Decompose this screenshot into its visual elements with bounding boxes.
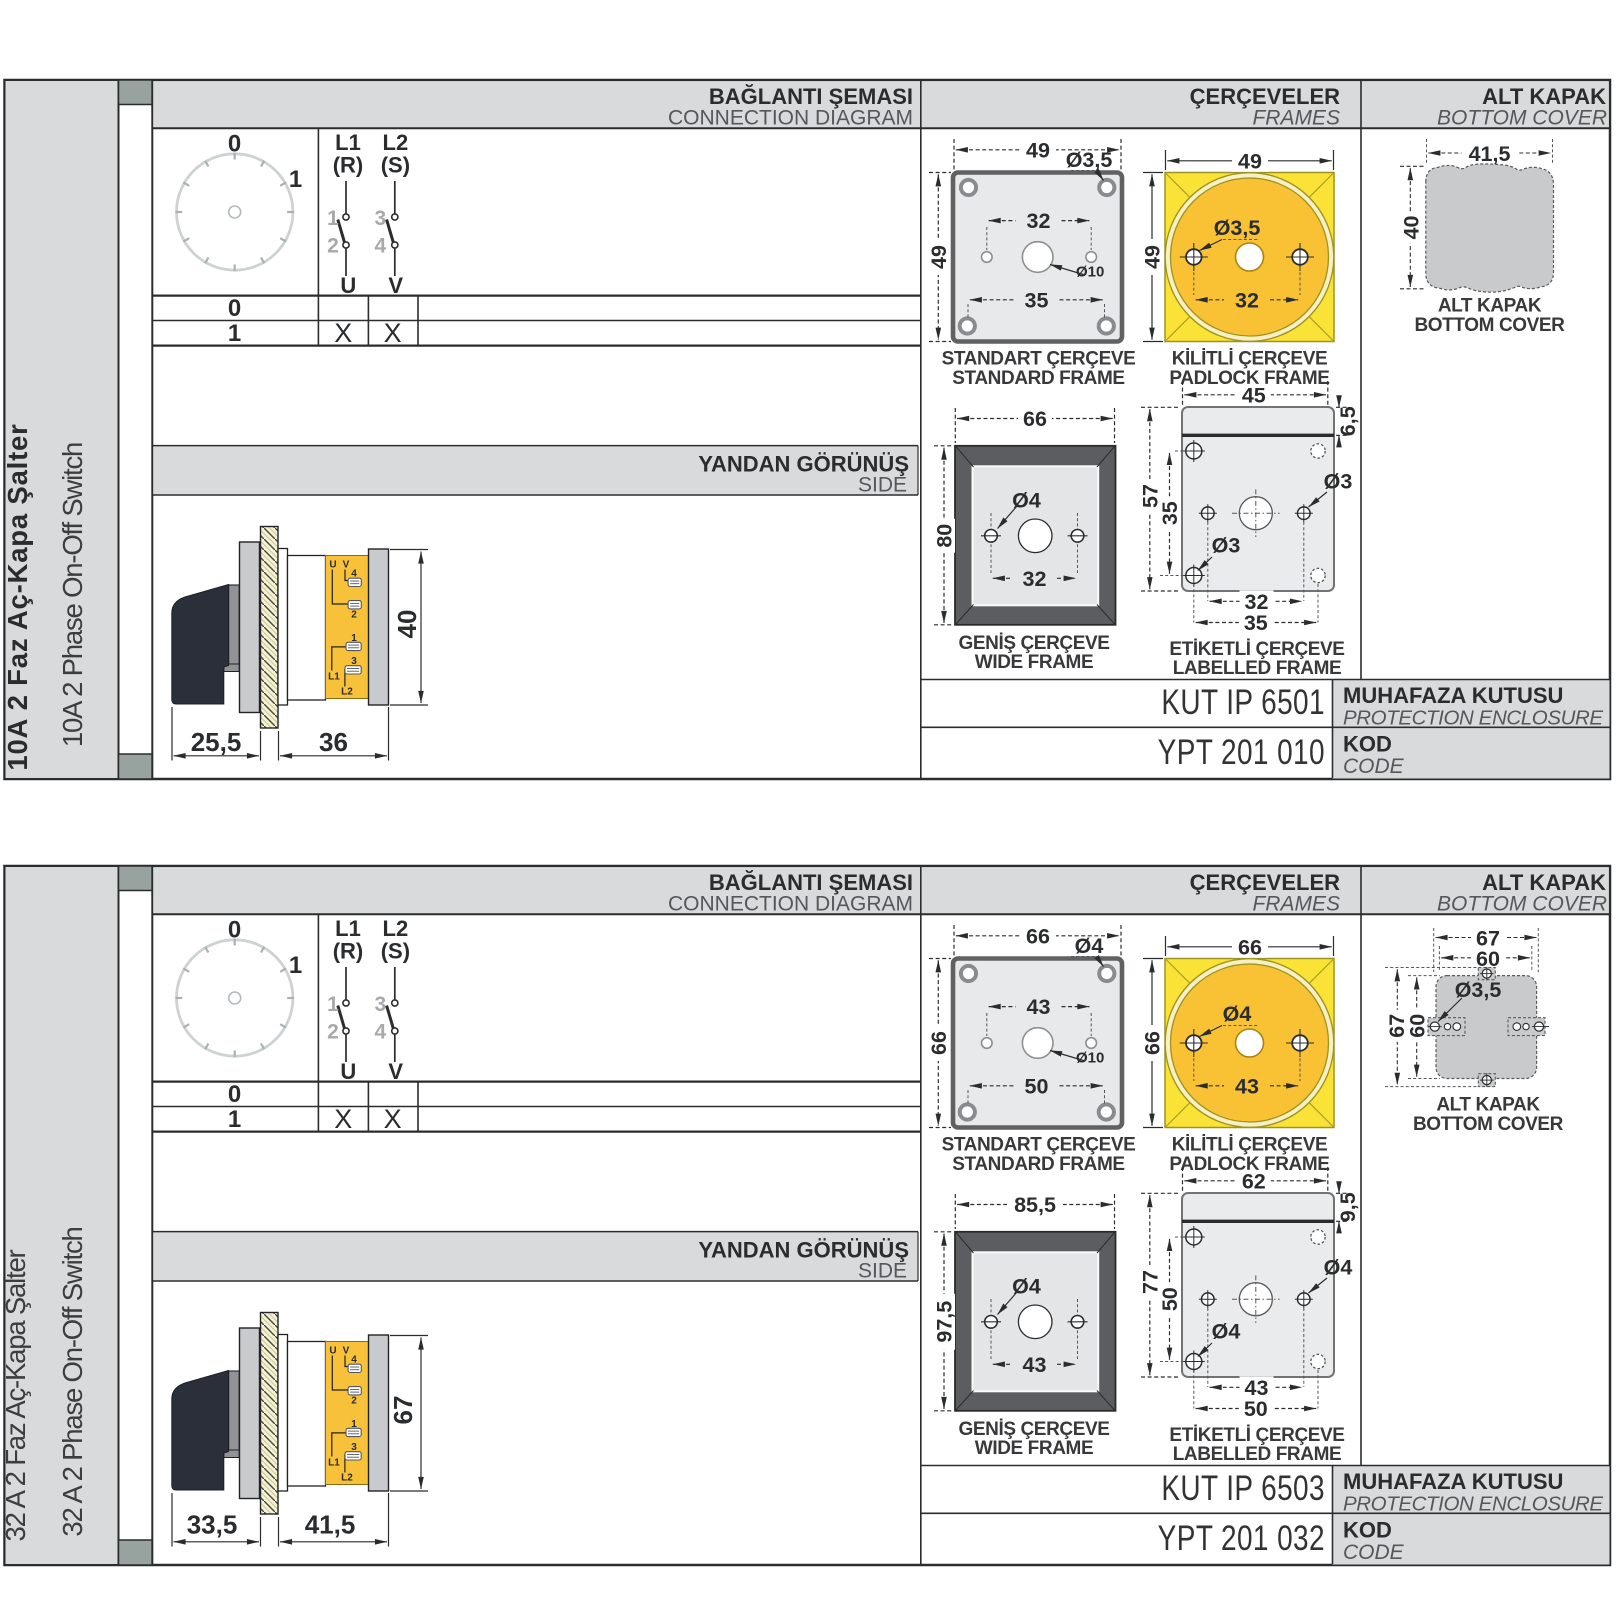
svg-text:Ø3,5: Ø3,5 bbox=[1214, 216, 1261, 240]
svg-text:49: 49 bbox=[1238, 149, 1262, 173]
svg-text:YPT 201 032: YPT 201 032 bbox=[1158, 1518, 1325, 1558]
svg-text:62: 62 bbox=[1242, 1169, 1266, 1193]
svg-text:66: 66 bbox=[1141, 1031, 1165, 1055]
svg-text:10A 2 Faz Aç-Kapa Şalter: 10A 2 Faz Aç-Kapa Şalter bbox=[2, 423, 33, 770]
svg-text:YPT 201 010: YPT 201 010 bbox=[1158, 732, 1325, 772]
svg-text:49: 49 bbox=[1026, 138, 1050, 162]
svg-text:32: 32 bbox=[1027, 209, 1051, 233]
svg-text:33,5: 33,5 bbox=[187, 1510, 238, 1540]
svg-text:10A 2 Phase On-Off Switch: 10A 2 Phase On-Off Switch bbox=[57, 443, 88, 747]
svg-text:Ø4: Ø4 bbox=[1324, 1256, 1353, 1280]
svg-text:35: 35 bbox=[1244, 611, 1268, 635]
svg-text:43: 43 bbox=[1027, 995, 1051, 1019]
svg-text:43: 43 bbox=[1023, 1353, 1047, 1377]
svg-text:25,5: 25,5 bbox=[191, 727, 242, 757]
svg-text:49: 49 bbox=[1141, 245, 1165, 269]
svg-text:6,5: 6,5 bbox=[1336, 406, 1360, 436]
svg-text:66: 66 bbox=[1238, 935, 1262, 959]
svg-text:41,5: 41,5 bbox=[305, 1510, 356, 1540]
svg-text:9,5: 9,5 bbox=[1336, 1192, 1360, 1222]
svg-text:66: 66 bbox=[1026, 924, 1050, 948]
svg-text:50: 50 bbox=[1158, 1287, 1182, 1311]
svg-text:Ø3: Ø3 bbox=[1324, 470, 1353, 494]
svg-text:66: 66 bbox=[927, 1031, 951, 1055]
svg-text:97,5: 97,5 bbox=[933, 1301, 957, 1343]
svg-text:40: 40 bbox=[392, 610, 422, 639]
svg-text:Ø3,5: Ø3,5 bbox=[1066, 148, 1113, 172]
svg-text:50: 50 bbox=[1244, 1397, 1268, 1421]
svg-text:50: 50 bbox=[1025, 1074, 1049, 1098]
svg-text:66: 66 bbox=[1023, 407, 1047, 431]
svg-text:Ø4: Ø4 bbox=[1223, 1002, 1252, 1026]
svg-text:35: 35 bbox=[1158, 501, 1182, 525]
svg-text:Ø4: Ø4 bbox=[1075, 934, 1104, 958]
svg-text:32: 32 bbox=[1235, 288, 1259, 312]
svg-text:Ø4: Ø4 bbox=[1212, 1320, 1241, 1344]
svg-text:KUT IP 6503: KUT IP 6503 bbox=[1161, 1468, 1325, 1508]
svg-text:43: 43 bbox=[1235, 1074, 1259, 1098]
svg-text:32 A 2 Faz Aç-Kapa Şalter: 32 A 2 Faz Aç-Kapa Şalter bbox=[0, 1249, 31, 1541]
svg-text:67: 67 bbox=[388, 1396, 418, 1425]
svg-text:80: 80 bbox=[933, 524, 957, 548]
svg-text:32 A 2 Phase On-Off Switch: 32 A 2 Phase On-Off Switch bbox=[57, 1227, 88, 1536]
svg-text:45: 45 bbox=[1242, 383, 1266, 407]
svg-text:KUT IP 6501: KUT IP 6501 bbox=[1161, 682, 1325, 722]
svg-text:32: 32 bbox=[1023, 567, 1047, 591]
svg-text:35: 35 bbox=[1025, 288, 1049, 312]
svg-text:49: 49 bbox=[927, 245, 951, 269]
svg-text:85,5: 85,5 bbox=[1014, 1193, 1056, 1217]
svg-text:36: 36 bbox=[319, 727, 348, 757]
svg-text:Ø3: Ø3 bbox=[1212, 534, 1241, 558]
